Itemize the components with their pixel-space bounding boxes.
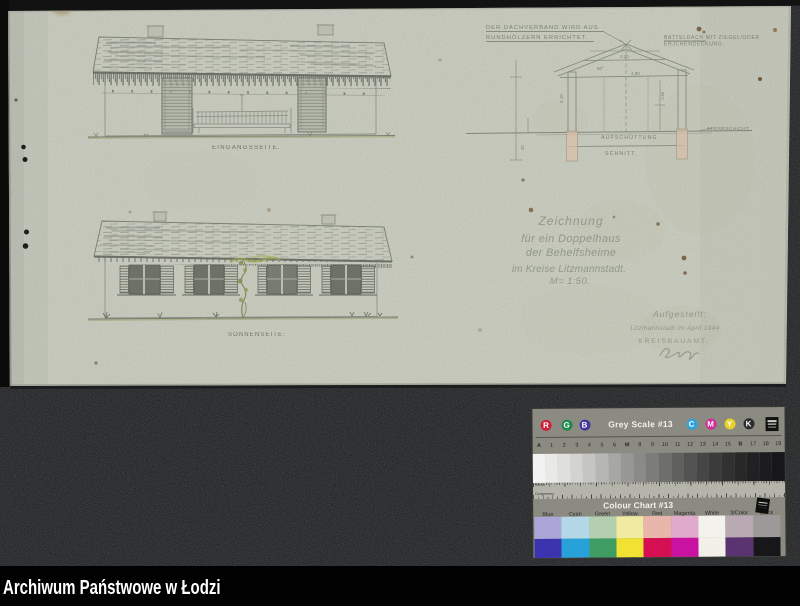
svg-text:60°: 60° [597, 66, 604, 71]
svg-text:1.50: 1.50 [660, 91, 665, 100]
svg-text:SONNENSEITE.: SONNENSEITE. [228, 332, 286, 338]
svg-text:2.10: 2.10 [559, 94, 564, 103]
svg-text:4.80: 4.80 [631, 71, 640, 76]
svg-text:EINGANGSSEITE.: EINGANGSSEITE. [212, 145, 281, 151]
svg-text:SPERRSCHICHT: SPERRSCHICHT [707, 126, 749, 131]
svg-text:Litzmannstadt im April 1944.: Litzmannstadt im April 1944. [630, 325, 721, 332]
svg-text:RUNDHÖLZERN ERRICHTET.: RUNDHÖLZERN ERRICHTET. [486, 34, 588, 41]
svg-text:Aufgestellt:: Aufgestellt: [652, 309, 707, 319]
svg-text:3.20: 3.20 [620, 54, 629, 59]
svg-text:Zeichnung: Zeichnung [537, 214, 603, 228]
svg-text:AUFSCHÜTTUNG: AUFSCHÜTTUNG [601, 134, 658, 141]
svg-text:M= 1:50.: M= 1:50. [550, 276, 590, 287]
svg-text:KREISBAUAMT.: KREISBAUAMT. [638, 338, 709, 345]
svg-text:BATTELDACH MIT ZIEGEL/ODER: BATTELDACH MIT ZIEGEL/ODER [664, 35, 760, 41]
svg-text:DER DACHVERBAND WIRD AUS: DER DACHVERBAND WIRD AUS [486, 25, 599, 31]
svg-text:SCHNITT.: SCHNITT. [605, 151, 637, 157]
svg-text:für ein Doppelhaus: für ein Doppelhaus [521, 233, 621, 245]
svg-text:40: 40 [520, 145, 525, 150]
svg-text:im Kreise Litzmannstadt.: im Kreise Litzmannstadt. [512, 264, 626, 275]
svg-text:ERJCHENDECKUNG.: ERJCHENDECKUNG. [664, 42, 725, 48]
svg-text:der Behelfsheime: der Behelfsheime [526, 247, 616, 259]
